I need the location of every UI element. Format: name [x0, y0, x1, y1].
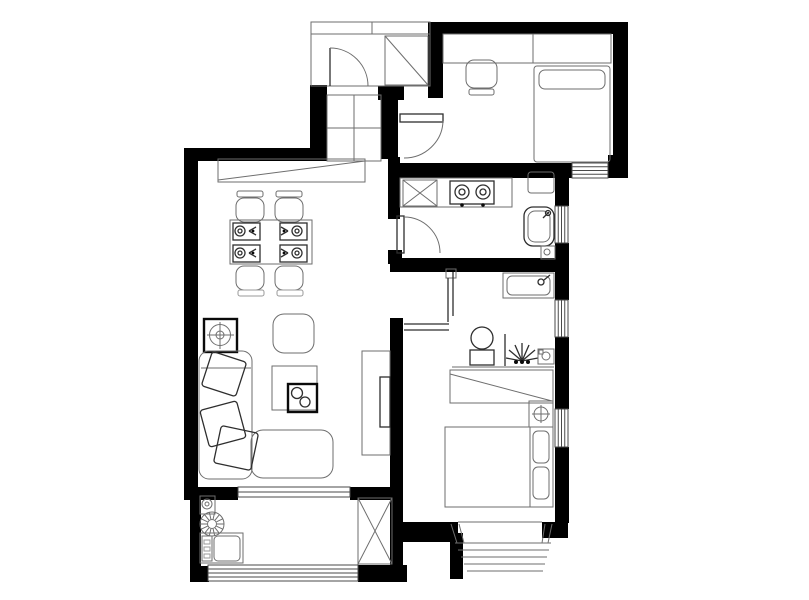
plate-br [292, 248, 302, 258]
washer-knob-1 [204, 540, 210, 544]
bed2-pillow-top [533, 431, 549, 463]
placemat-bl [233, 245, 260, 262]
plate-tl-inner [238, 229, 242, 233]
wall-east-c [555, 337, 569, 409]
washer-door [214, 536, 240, 561]
toilet-bowl [471, 327, 493, 349]
wall-balcony-br-corner [358, 565, 407, 582]
wardrobe-diagonal [450, 374, 552, 401]
fan-fixture-spokes-spoke-13 [217, 519, 223, 522]
shower-dot-1 [514, 360, 518, 364]
kitchen-door-swing [404, 217, 440, 253]
toilet-tank [470, 350, 494, 365]
tv-cabinet [362, 351, 390, 455]
vestibule-outline [311, 22, 430, 86]
bathroom [446, 269, 554, 367]
vanity-tap [538, 279, 544, 285]
wardrobe [450, 370, 553, 403]
stove [450, 181, 494, 204]
plate-bl [235, 248, 245, 258]
burner-right [476, 185, 490, 199]
sideboard-diagonal [218, 161, 365, 180]
fan-fixture-spokes-spoke-12 [215, 515, 219, 520]
desk-counter [443, 34, 611, 63]
wall-living-south-left [184, 487, 238, 500]
kitchen-drain [544, 249, 550, 255]
vanity-counter [503, 273, 554, 298]
vanity-basin [507, 276, 550, 295]
tray-cup-2 [300, 397, 310, 407]
washer-knob-3 [204, 554, 210, 558]
bath-drain-box [538, 349, 554, 364]
shower-dot-2 [520, 360, 524, 364]
living-dining [199, 159, 390, 479]
wall-bay-right-corner [542, 522, 568, 538]
burner-right-inner [480, 189, 486, 195]
dining-chair-bl [236, 266, 264, 290]
wall-kitchen-west-upper [381, 96, 398, 159]
floor-plan-canvas [0, 0, 809, 600]
washer-knob-2 [204, 547, 210, 551]
fan-fixture-spokes-spoke-8 [201, 519, 207, 522]
wall-kitchen-bath [390, 258, 558, 272]
desk-chair [466, 60, 497, 88]
shoe-cabinet-diagonal [385, 36, 428, 85]
kitchen-counter [400, 178, 512, 207]
sofa-pillow-2 [200, 401, 247, 448]
single-bed [534, 66, 610, 162]
ottoman [273, 314, 314, 353]
wall-bed1-east [613, 22, 628, 178]
placemat-tl [233, 223, 260, 240]
fan-fixture-spokes-spoke-3 [213, 529, 215, 536]
tv-screen [380, 377, 390, 427]
floor-drain-ring [202, 499, 212, 509]
bed1-door-swing [404, 121, 443, 158]
fan-fixture-spokes-spoke-9 [205, 515, 209, 520]
wall-balcony-bl-corner [190, 566, 209, 582]
dining-chair-back-br [277, 290, 303, 296]
floor-plan-page [0, 0, 809, 600]
entry-door-swing [330, 48, 368, 86]
wall-foyer-west [310, 85, 327, 161]
plate-tr-inner [295, 229, 299, 233]
fan-fixture-spokes-spoke-6 [201, 526, 207, 529]
fan-fixture-core [208, 520, 217, 529]
bed2-pillow-bottom [533, 467, 549, 499]
fan-fixture-spokes-spoke-11 [213, 512, 215, 519]
desk-chair-back [469, 89, 494, 95]
balcony [200, 496, 392, 564]
dining-chair-tr [275, 198, 303, 222]
wall-east-a [555, 175, 569, 206]
wall-left-upper [184, 148, 198, 493]
plate-br-inner [295, 251, 299, 255]
stove-knob-left [460, 203, 464, 207]
sofa-pillow-1 [201, 351, 246, 396]
fan-fixture-spokes-spoke-4 [209, 529, 211, 536]
dining-chair-back-bl [238, 290, 264, 296]
burner-left-inner [459, 189, 465, 195]
kitchen-drain-box [541, 246, 555, 259]
utensil-tr-dot [283, 230, 286, 233]
stove-knob-right [481, 203, 485, 207]
wall-east-b [555, 243, 569, 300]
dining-chair-tl [236, 198, 264, 222]
dining-chair-back-tr [276, 191, 302, 197]
bedroom-1 [443, 34, 611, 162]
windows [208, 163, 608, 581]
entry-vestibule [311, 22, 430, 86]
plate-bl-inner [238, 251, 242, 255]
plate-tr [292, 226, 302, 236]
wall-bed1-top [428, 22, 626, 34]
tray-cup-1 [292, 388, 303, 399]
utensil-tl-dot [252, 230, 255, 233]
fan-fixture-spokes-spoke-1 [217, 526, 223, 529]
shower-dot-3 [526, 360, 530, 364]
sofa-chaise [251, 430, 333, 478]
plate-tl [235, 226, 245, 236]
wall-bed2-south-stub [403, 527, 451, 542]
dining-chair-br [275, 266, 303, 290]
floor-drain-core [205, 502, 209, 506]
wall-east-d [555, 447, 569, 523]
burner-left [455, 185, 469, 199]
bed1-door-leaf [400, 114, 443, 122]
single-bed-pillow [539, 70, 605, 89]
utensil-bl-dot [252, 252, 255, 255]
dining-chair-back-tl [237, 191, 263, 197]
kitchen [397, 172, 555, 259]
kitchen-door-leaf [397, 216, 404, 253]
fan-fixture-spokes-spoke-10 [209, 512, 211, 519]
wall-bed1-se-corner [608, 155, 628, 178]
wall-bed1-south [398, 163, 574, 178]
utensil-br-dot [283, 252, 286, 255]
